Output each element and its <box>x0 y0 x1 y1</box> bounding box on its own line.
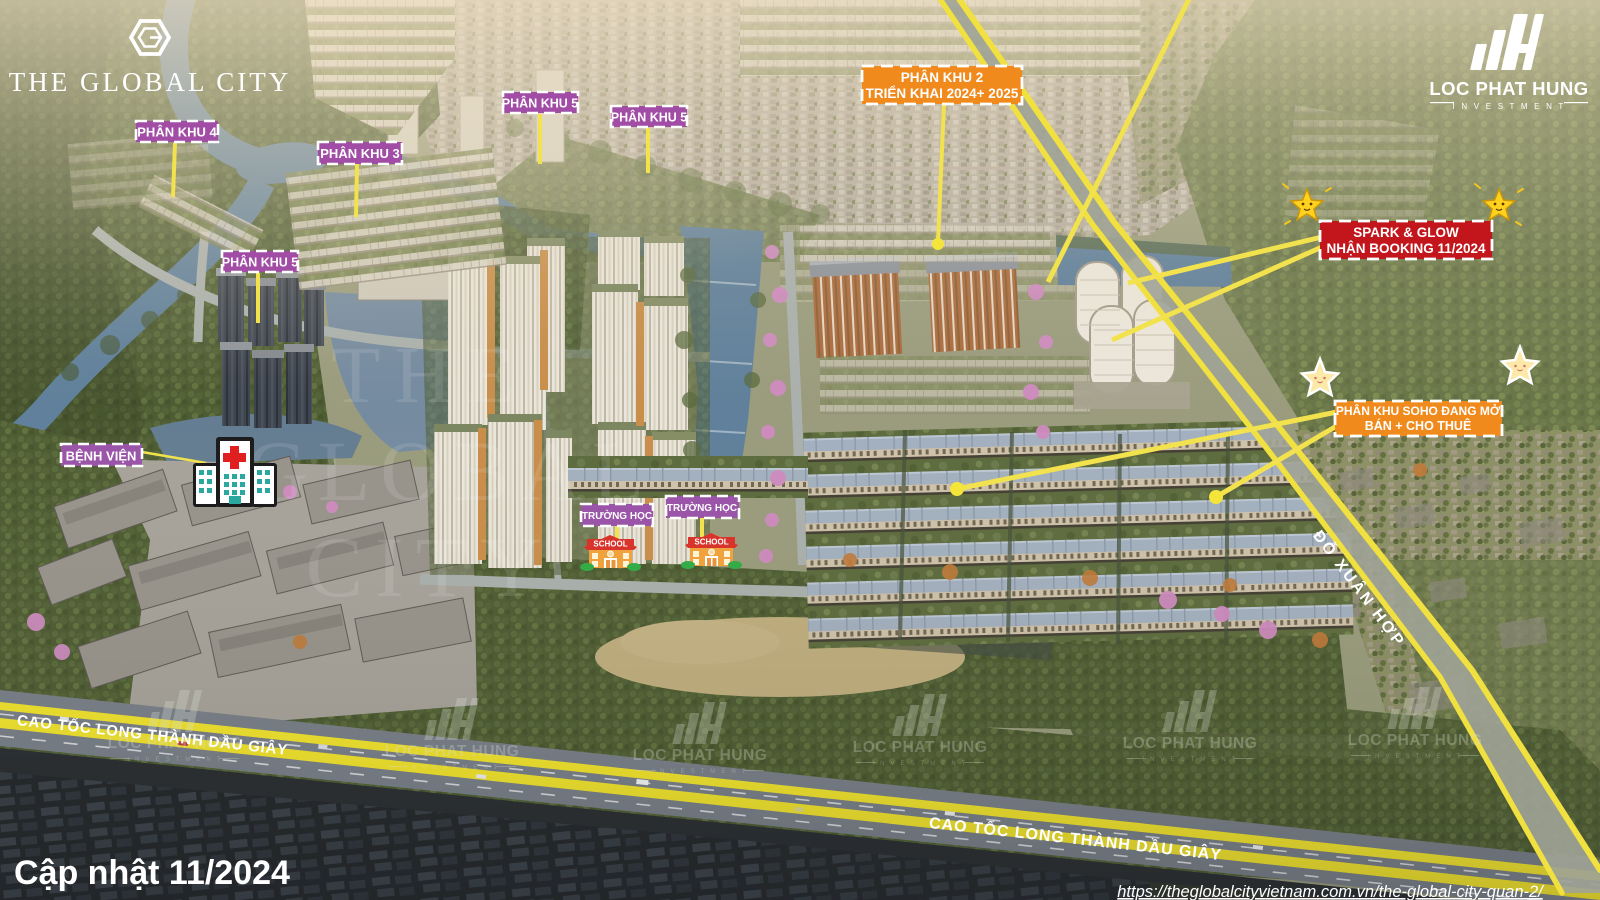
svg-text:TRƯỜNG HỌC: TRƯỜNG HỌC <box>582 509 652 522</box>
svg-text:PHÂN KHU 5: PHÂN KHU 5 <box>611 110 687 125</box>
svg-text:Cập nhật 11/2024: Cập nhật 11/2024 <box>14 854 290 892</box>
svg-text:CITY: CITY <box>306 519 555 615</box>
svg-text:THE: THE <box>331 332 529 420</box>
svg-text:PHÂN KHU SOHO ĐANG MỞ: PHÂN KHU SOHO ĐANG MỞ <box>1336 403 1501 418</box>
svg-text:NHẬN BOOKING 11/2024: NHẬN BOOKING 11/2024 <box>1326 241 1486 256</box>
svg-text:THE GLOBAL CITY: THE GLOBAL CITY <box>9 67 291 97</box>
svg-text:https://theglobalcityvietnam.c: https://theglobalcityvietnam.com.vn/the-… <box>1117 883 1544 900</box>
svg-text:PHÂN KHU 5: PHÂN KHU 5 <box>222 255 298 270</box>
svg-text:SPARK & GLOW: SPARK & GLOW <box>1353 225 1459 240</box>
svg-text:PHÂN KHU 5: PHÂN KHU 5 <box>502 96 578 111</box>
svg-text:SCHOOL: SCHOOL <box>593 540 627 549</box>
svg-text:LOC PHAT HUNG: LOC PHAT HUNG <box>1429 78 1588 99</box>
svg-text:PHÂN KHU 2: PHÂN KHU 2 <box>901 70 984 85</box>
svg-text:BÁN + CHO THUÊ: BÁN + CHO THUÊ <box>1365 418 1472 433</box>
svg-text:TRƯỜNG HỌC: TRƯỜNG HỌC <box>667 501 737 514</box>
svg-text:TRIỂN KHAI 2024+ 2025: TRIỂN KHAI 2024+ 2025 <box>866 86 1019 101</box>
svg-text:PHÂN KHU 3: PHÂN KHU 3 <box>320 146 399 161</box>
svg-text:BỆNH VIỆN: BỆNH VIỆN <box>66 449 137 464</box>
svg-text:PHÂN KHU 4: PHÂN KHU 4 <box>137 125 217 140</box>
svg-text:I N V E S T M E N T: I N V E S T M E N T <box>1453 102 1566 111</box>
